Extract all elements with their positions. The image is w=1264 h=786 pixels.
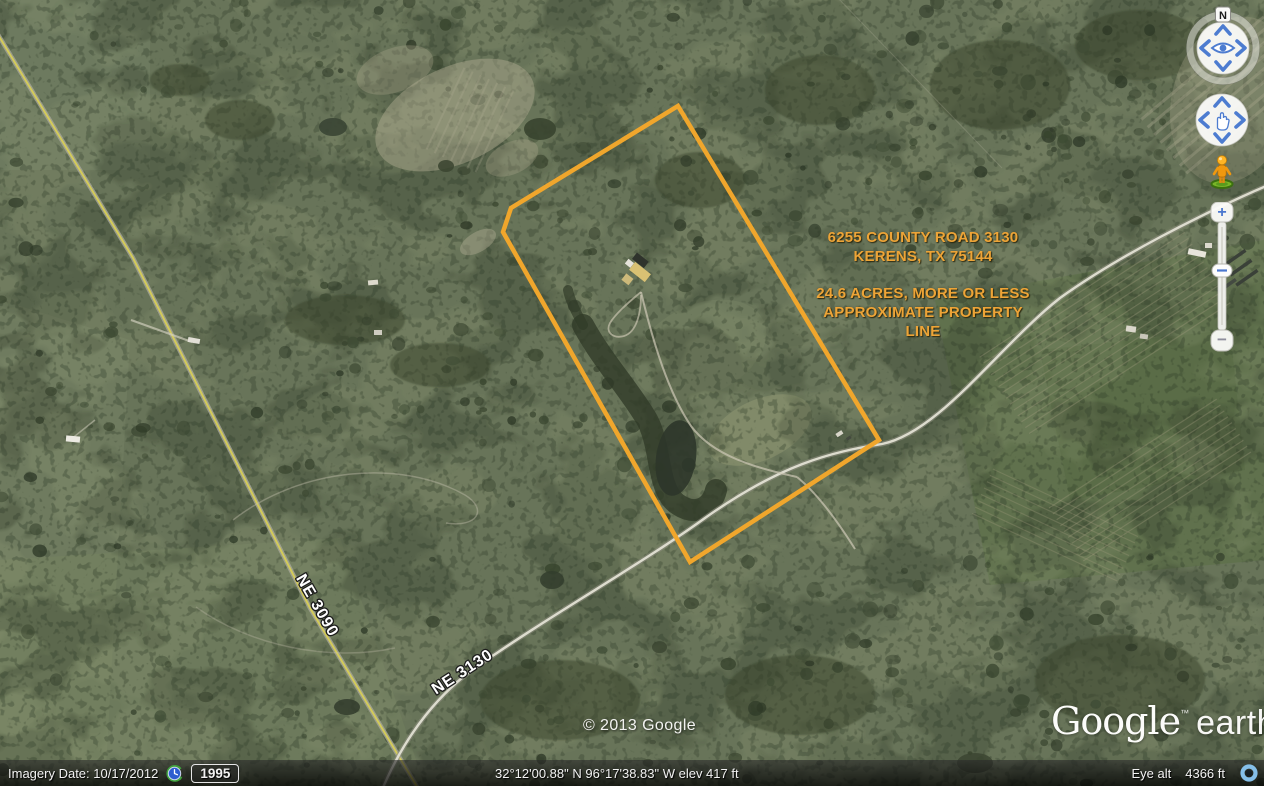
north-badge-label: N — [1219, 10, 1227, 22]
pegman-street-view[interactable] — [1206, 152, 1238, 195]
eye-pupil — [1220, 45, 1227, 52]
logo-tm-mark: ™ — [1180, 708, 1189, 718]
zoom-slider[interactable]: + − — [1209, 202, 1235, 359]
terrain — [0, 0, 1264, 786]
historical-imagery-clock-icon[interactable] — [165, 764, 184, 783]
pegman-head-highlight — [1219, 157, 1222, 160]
eye-alt-label: Eye alt — [1131, 766, 1171, 781]
annotation-address-line1: 6255 COUNTY ROAD 3130 — [806, 228, 1040, 247]
history-year-button[interactable]: 1995 — [191, 764, 239, 783]
move-joystick[interactable] — [1192, 90, 1252, 155]
look-joystick[interactable]: N — [1184, 6, 1262, 91]
zoom-in-label: + — [1217, 204, 1226, 221]
logo-earth-text: earth — [1196, 704, 1264, 742]
pegman-right-arm — [1226, 168, 1230, 174]
pegman-body — [1218, 165, 1226, 177]
google-earth-logo: Google™earth — [1051, 699, 1264, 743]
pointer-coordinates: 32°12'00.88" N 96°17'38.83" W elev 417 f… — [495, 766, 739, 781]
eye-alt-value: 4366 ft — [1185, 766, 1225, 781]
annotation-acreage-line: 24.6 ACRES, MORE OR LESS — [806, 284, 1040, 303]
annotation-address-line2: KERENS, TX 75144 — [806, 247, 1040, 266]
imagery-date-label: Imagery Date: 10/17/2012 — [8, 766, 158, 781]
zoom-out-label: − — [1217, 330, 1227, 349]
copyright-watermark: © 2013 Google — [583, 717, 696, 735]
status-bar: Imagery Date: 10/17/2012 1995 32°12'00.8… — [0, 760, 1264, 786]
pegman-left-arm — [1214, 168, 1218, 174]
pegman-base-inner — [1216, 182, 1228, 186]
google-earth-window: NE 3090 NE 3130 6255 COUNTY ROAD 3130 KE… — [0, 0, 1264, 786]
streaming-indicator-icon — [1239, 763, 1259, 783]
satellite-map[interactable]: NE 3090 NE 3130 — [0, 0, 1264, 786]
logo-google-text: Google — [1051, 699, 1180, 743]
property-annotation: 6255 COUNTY ROAD 3130 KERENS, TX 75144 2… — [806, 228, 1040, 341]
annotation-property-line-note: APPROXIMATE PROPERTY LINE — [806, 303, 1040, 341]
pegman-head — [1217, 156, 1226, 165]
